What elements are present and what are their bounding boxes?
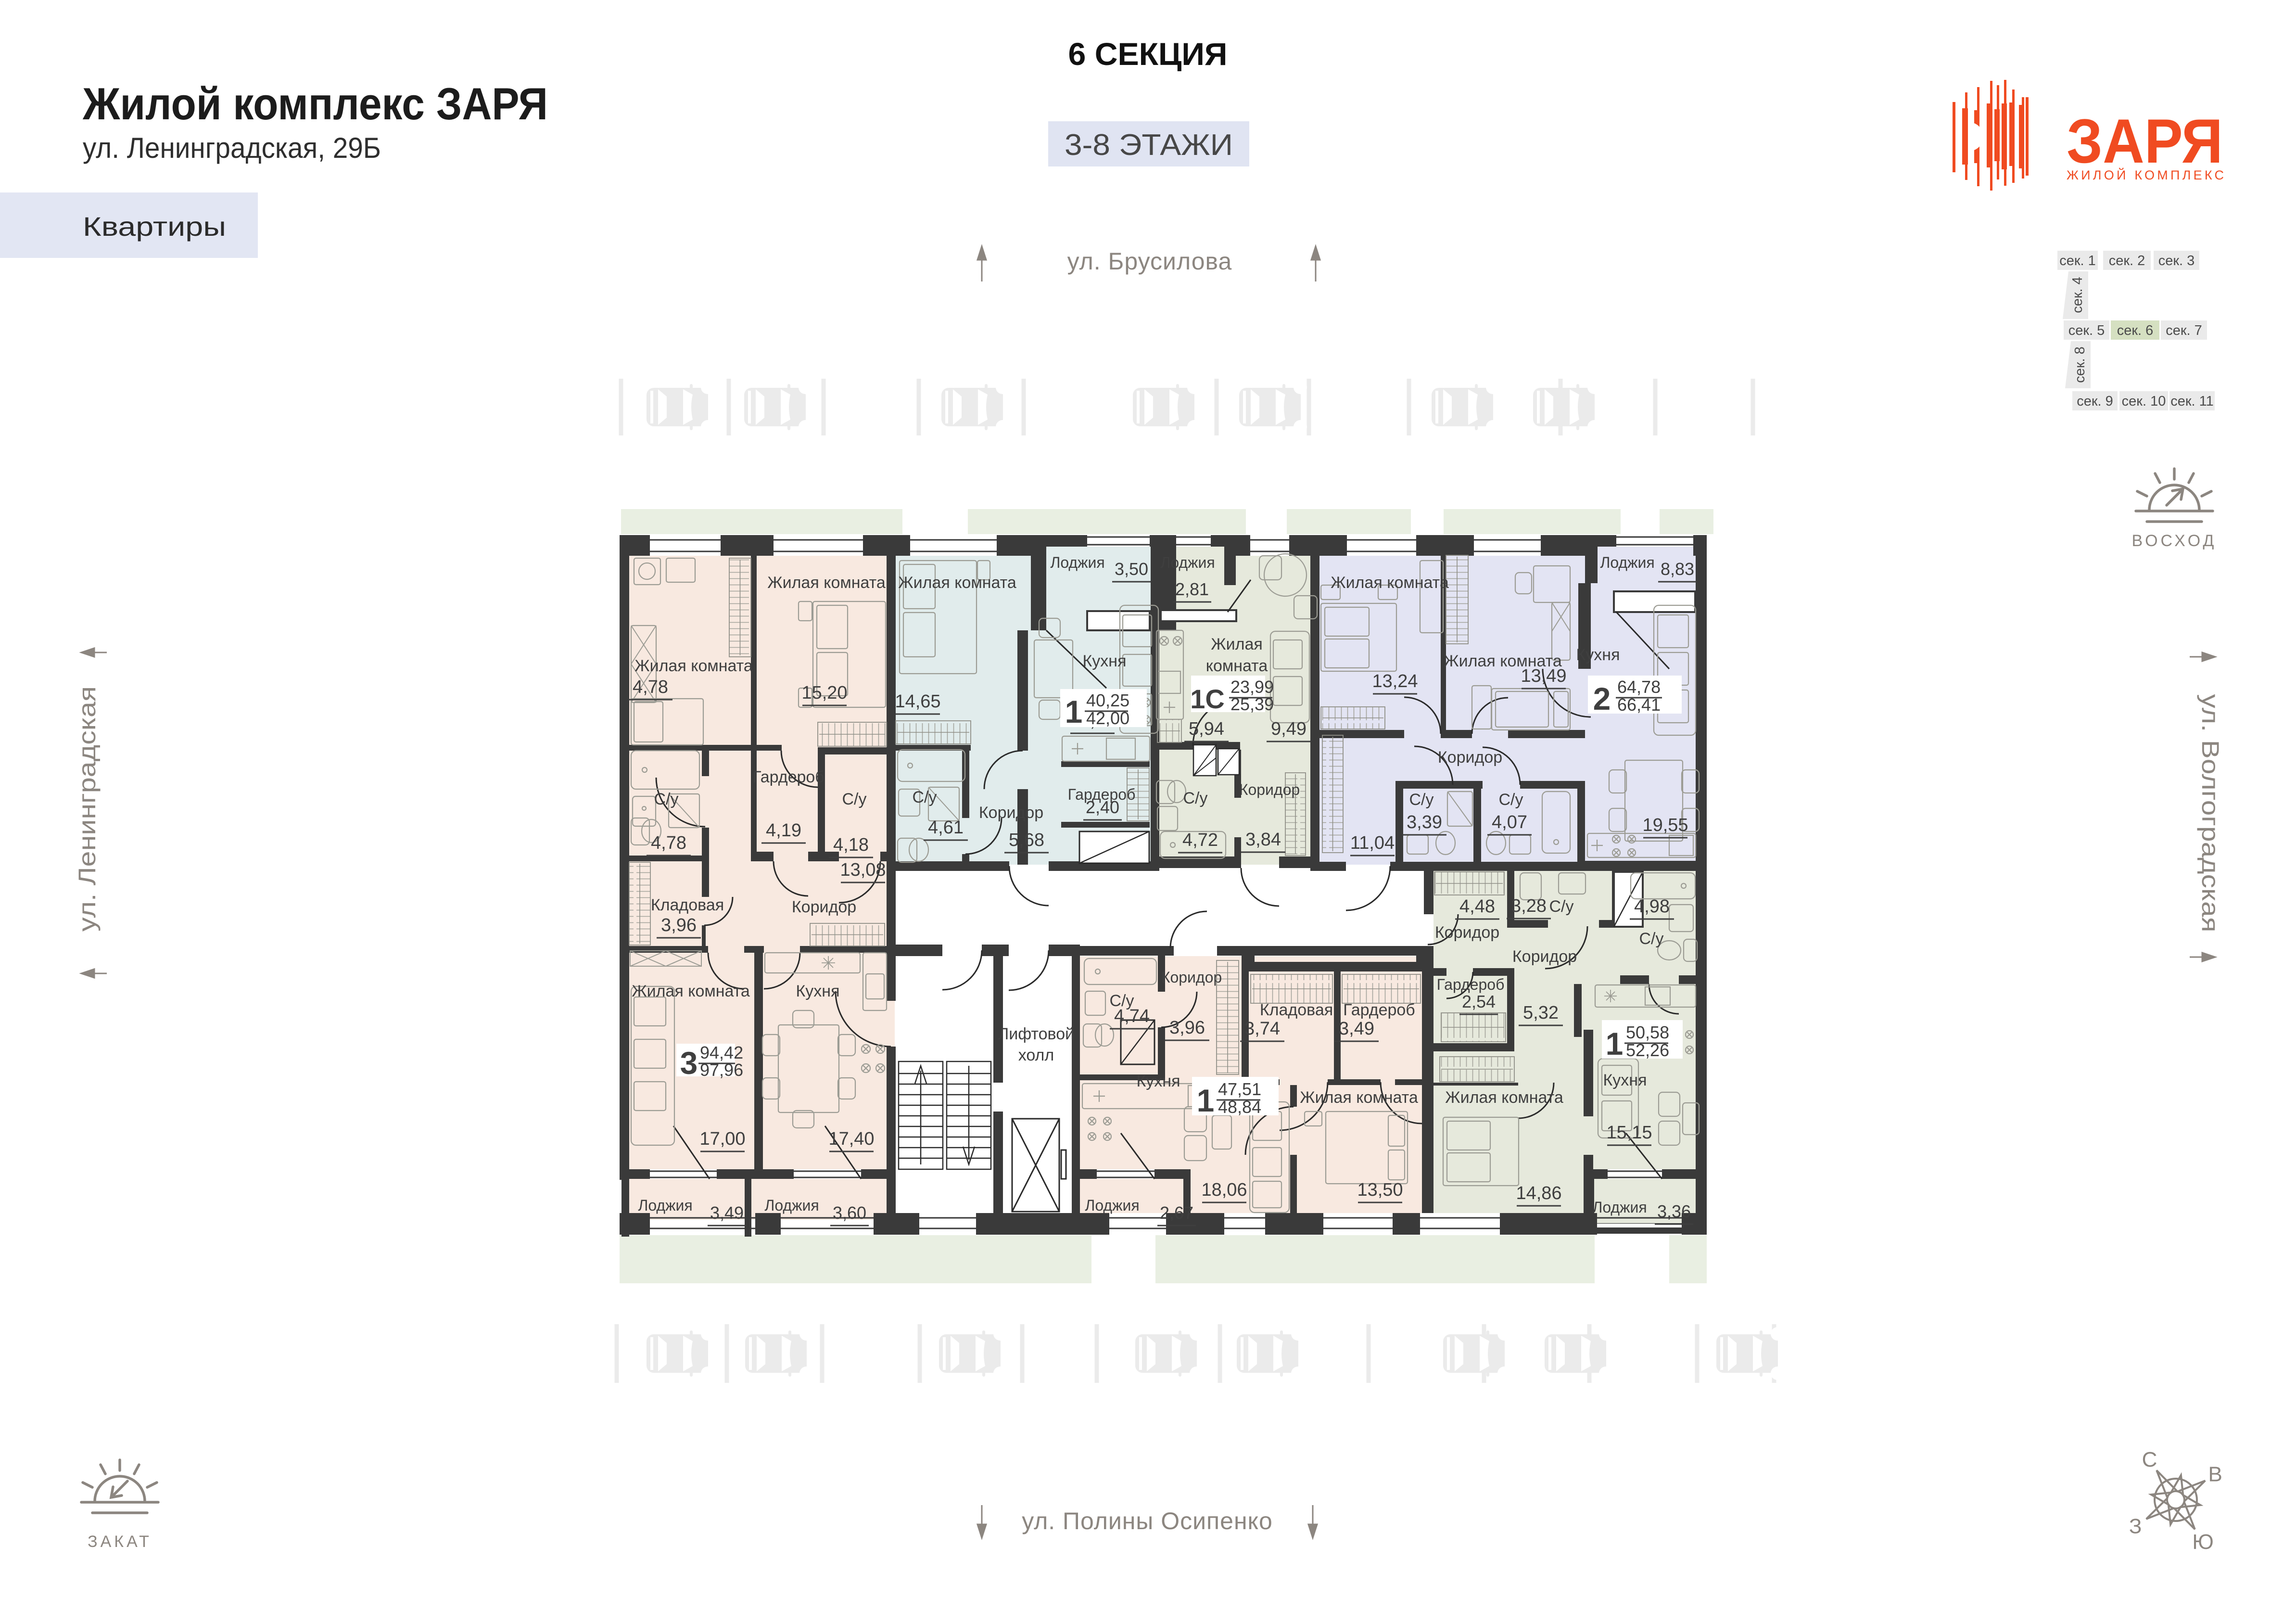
svg-text:Жилой комплекс ЗАРЯ: Жилой комплекс ЗАРЯ	[82, 78, 548, 129]
svg-text:3,74: 3,74	[1244, 1019, 1280, 1039]
svg-text:3,39: 3,39	[1407, 812, 1442, 832]
svg-text:С/у: С/у	[1639, 930, 1664, 948]
svg-text:6 СЕКЦИЯ: 6 СЕКЦИЯ	[1068, 36, 1228, 72]
svg-text:Лоджия: Лоджия	[1050, 554, 1104, 571]
svg-text:1: 1	[1606, 1026, 1624, 1061]
svg-text:13,49: 13,49	[1521, 666, 1566, 686]
svg-text:Жилая комната: Жилая комната	[767, 574, 886, 592]
svg-text:З: З	[2129, 1514, 2142, 1538]
svg-text:Лоджия: Лоджия	[1085, 1197, 1139, 1214]
svg-text:Коридор: Коридор	[1435, 923, 1499, 942]
svg-text:ЗАКАТ: ЗАКАТ	[88, 1533, 152, 1551]
svg-text:ВОСХОД: ВОСХОД	[2132, 532, 2217, 550]
svg-text:сек. 1: сек. 1	[2059, 253, 2096, 268]
svg-text:ЗАРЯ: ЗАРЯ	[2067, 106, 2223, 176]
svg-text:С/у: С/у	[654, 790, 679, 808]
svg-text:Жилая комната: Жилая комната	[1300, 1088, 1418, 1107]
svg-text:сек. 10: сек. 10	[2122, 394, 2166, 409]
svg-text:66,41: 66,41	[1617, 695, 1661, 715]
svg-text:ЖИЛОЙ КОМПЛЕКС: ЖИЛОЙ КОМПЛЕКС	[2067, 167, 2224, 182]
svg-text:4,78: 4,78	[651, 833, 686, 853]
svg-text:3,84: 3,84	[1245, 830, 1281, 850]
svg-text:холл: холл	[1018, 1046, 1054, 1064]
svg-text:4,98: 4,98	[1634, 896, 1670, 917]
svg-text:2: 2	[1593, 681, 1611, 716]
svg-text:сек. 5: сек. 5	[2068, 323, 2105, 338]
svg-text:Лоджия: Лоджия	[1160, 554, 1215, 571]
svg-text:Жилая комната: Жилая комната	[1331, 574, 1449, 592]
svg-text:3-8 ЭТАЖИ: 3-8 ЭТАЖИ	[1065, 128, 1233, 162]
svg-text:3,28: 3,28	[1511, 896, 1547, 916]
svg-text:17,00: 17,00	[699, 1129, 745, 1149]
svg-text:4,48: 4,48	[1459, 896, 1495, 917]
svg-text:4,61: 4,61	[928, 818, 964, 838]
svg-text:Лоджия: Лоджия	[1600, 554, 1654, 571]
svg-text:комната: комната	[1206, 657, 1268, 675]
svg-text:сек. 6: сек. 6	[2117, 323, 2154, 338]
svg-text:50,58: 50,58	[1626, 1022, 1669, 1042]
svg-text:15,15: 15,15	[1606, 1123, 1652, 1143]
svg-text:сек. 4: сек. 4	[2070, 277, 2085, 313]
svg-text:С/у: С/у	[1499, 791, 1523, 809]
svg-text:Лоджия: Лоджия	[638, 1197, 692, 1214]
svg-text:С/у: С/у	[913, 788, 937, 806]
svg-text:ул. Брусилова: ул. Брусилова	[1067, 248, 1232, 275]
svg-text:2,81: 2,81	[1175, 579, 1209, 599]
svg-text:Коридор: Коридор	[1438, 748, 1502, 767]
svg-text:4,78: 4,78	[633, 677, 668, 697]
svg-text:Квартиры: Квартиры	[83, 211, 226, 242]
svg-text:15,20: 15,20	[801, 683, 847, 703]
svg-text:сек. 3: сек. 3	[2158, 253, 2195, 268]
svg-text:23,99: 23,99	[1230, 677, 1274, 697]
svg-text:3,36: 3,36	[1657, 1201, 1691, 1221]
svg-text:25,39: 25,39	[1230, 694, 1274, 714]
svg-text:4,18: 4,18	[833, 835, 869, 855]
svg-text:С/у: С/у	[1409, 791, 1434, 809]
svg-text:Жилая комната: Жилая комната	[1445, 1088, 1563, 1107]
svg-text:11,04: 11,04	[1350, 833, 1395, 853]
svg-text:17,40: 17,40	[828, 1129, 874, 1149]
svg-text:4,07: 4,07	[1492, 812, 1527, 832]
svg-text:Коридор: Коридор	[1239, 781, 1300, 798]
svg-text:64,78: 64,78	[1617, 677, 1661, 697]
svg-text:Жилая комната: Жилая комната	[632, 982, 750, 1000]
svg-text:сек. 9: сек. 9	[2077, 394, 2113, 409]
svg-text:Кухня: Кухня	[1603, 1071, 1647, 1089]
svg-text:14,86: 14,86	[1516, 1183, 1561, 1203]
svg-text:сек. 8: сек. 8	[2072, 346, 2088, 383]
svg-text:2,67: 2,67	[1160, 1203, 1193, 1223]
svg-text:С: С	[2142, 1448, 2157, 1471]
svg-text:В: В	[2208, 1463, 2222, 1486]
svg-text:Коридор: Коридор	[1161, 969, 1222, 986]
svg-text:Жилая комната: Жилая комната	[898, 574, 1016, 592]
svg-text:3,49: 3,49	[1339, 1019, 1374, 1039]
svg-text:Коридор: Коридор	[979, 804, 1043, 822]
svg-text:Кладовая: Кладовая	[651, 896, 724, 914]
svg-text:9,49: 9,49	[1271, 719, 1307, 739]
svg-text:С/у: С/у	[1549, 897, 1574, 916]
svg-text:сек. 7: сек. 7	[2166, 323, 2202, 338]
svg-text:ул. Ленинградская: ул. Ленинградская	[74, 686, 101, 932]
svg-text:Ю: Ю	[2192, 1530, 2213, 1554]
svg-text:сек. 11: сек. 11	[2170, 394, 2214, 409]
svg-text:3,60: 3,60	[833, 1203, 866, 1223]
svg-text:19,55: 19,55	[1642, 815, 1688, 835]
svg-text:2,40: 2,40	[1086, 797, 1119, 817]
svg-text:3: 3	[680, 1045, 698, 1081]
svg-text:18,06: 18,06	[1201, 1180, 1247, 1200]
svg-text:ул. Волгоградская: ул. Волгоградская	[2197, 694, 2224, 933]
svg-text:1: 1	[1197, 1083, 1215, 1118]
svg-text:3,49: 3,49	[710, 1203, 744, 1223]
svg-text:сек. 2: сек. 2	[2109, 253, 2145, 268]
svg-text:4,19: 4,19	[766, 820, 801, 841]
svg-text:Кухня: Кухня	[1137, 1072, 1180, 1090]
svg-text:13,08: 13,08	[840, 860, 886, 880]
svg-text:Гардероб: Гардероб	[1437, 976, 1505, 993]
svg-text:Лоджия: Лоджия	[1592, 1199, 1647, 1216]
svg-text:8,83: 8,83	[1661, 559, 1694, 579]
svg-text:Гардероб: Гардероб	[1343, 1001, 1415, 1019]
svg-text:3,50: 3,50	[1115, 559, 1148, 579]
svg-text:Кухня: Кухня	[796, 982, 840, 1000]
svg-text:Жилая: Жилая	[1211, 635, 1263, 653]
svg-text:3,96: 3,96	[661, 915, 697, 935]
svg-text:40,25: 40,25	[1086, 690, 1129, 710]
svg-text:Жилая комната: Жилая комната	[634, 657, 753, 675]
svg-text:4,74: 4,74	[1114, 1006, 1150, 1026]
svg-text:94,42: 94,42	[700, 1043, 743, 1062]
svg-text:14,65: 14,65	[895, 691, 940, 712]
svg-text:Кухня: Кухня	[1576, 646, 1620, 664]
svg-text:Коридор: Коридор	[792, 898, 856, 916]
svg-text:ул. Полины Осипенко: ул. Полины Осипенко	[1022, 1508, 1273, 1534]
svg-text:Кладовая: Кладовая	[1260, 1001, 1333, 1019]
svg-text:Лоджия: Лоджия	[764, 1197, 819, 1214]
svg-text:42,00: 42,00	[1086, 708, 1129, 728]
svg-text:52,26: 52,26	[1626, 1040, 1669, 1060]
svg-text:Гардероб: Гардероб	[752, 768, 825, 786]
svg-text:Лифтовой: Лифтовой	[998, 1025, 1074, 1043]
svg-text:С/у: С/у	[842, 790, 867, 808]
svg-text:5,94: 5,94	[1189, 719, 1224, 739]
svg-text:48,84: 48,84	[1218, 1097, 1261, 1117]
svg-text:5,32: 5,32	[1523, 1003, 1559, 1023]
svg-text:1: 1	[1065, 694, 1083, 729]
svg-text:ул. Ленинградская, 29Б: ул. Ленинградская, 29Б	[83, 132, 381, 164]
svg-text:97,96: 97,96	[700, 1060, 743, 1080]
svg-text:Коридор: Коридор	[1512, 947, 1577, 966]
svg-text:4,72: 4,72	[1182, 830, 1218, 850]
svg-text:5,68: 5,68	[1009, 830, 1044, 850]
svg-text:2,54: 2,54	[1462, 992, 1496, 1011]
svg-text:47,51: 47,51	[1218, 1079, 1261, 1099]
svg-text:1С: 1С	[1190, 684, 1225, 714]
svg-text:3,96: 3,96	[1169, 1018, 1205, 1038]
svg-text:С/у: С/у	[1183, 789, 1208, 807]
svg-text:13,24: 13,24	[1372, 671, 1418, 691]
svg-text:13,50: 13,50	[1357, 1180, 1403, 1200]
svg-text:Кухня: Кухня	[1083, 652, 1127, 670]
